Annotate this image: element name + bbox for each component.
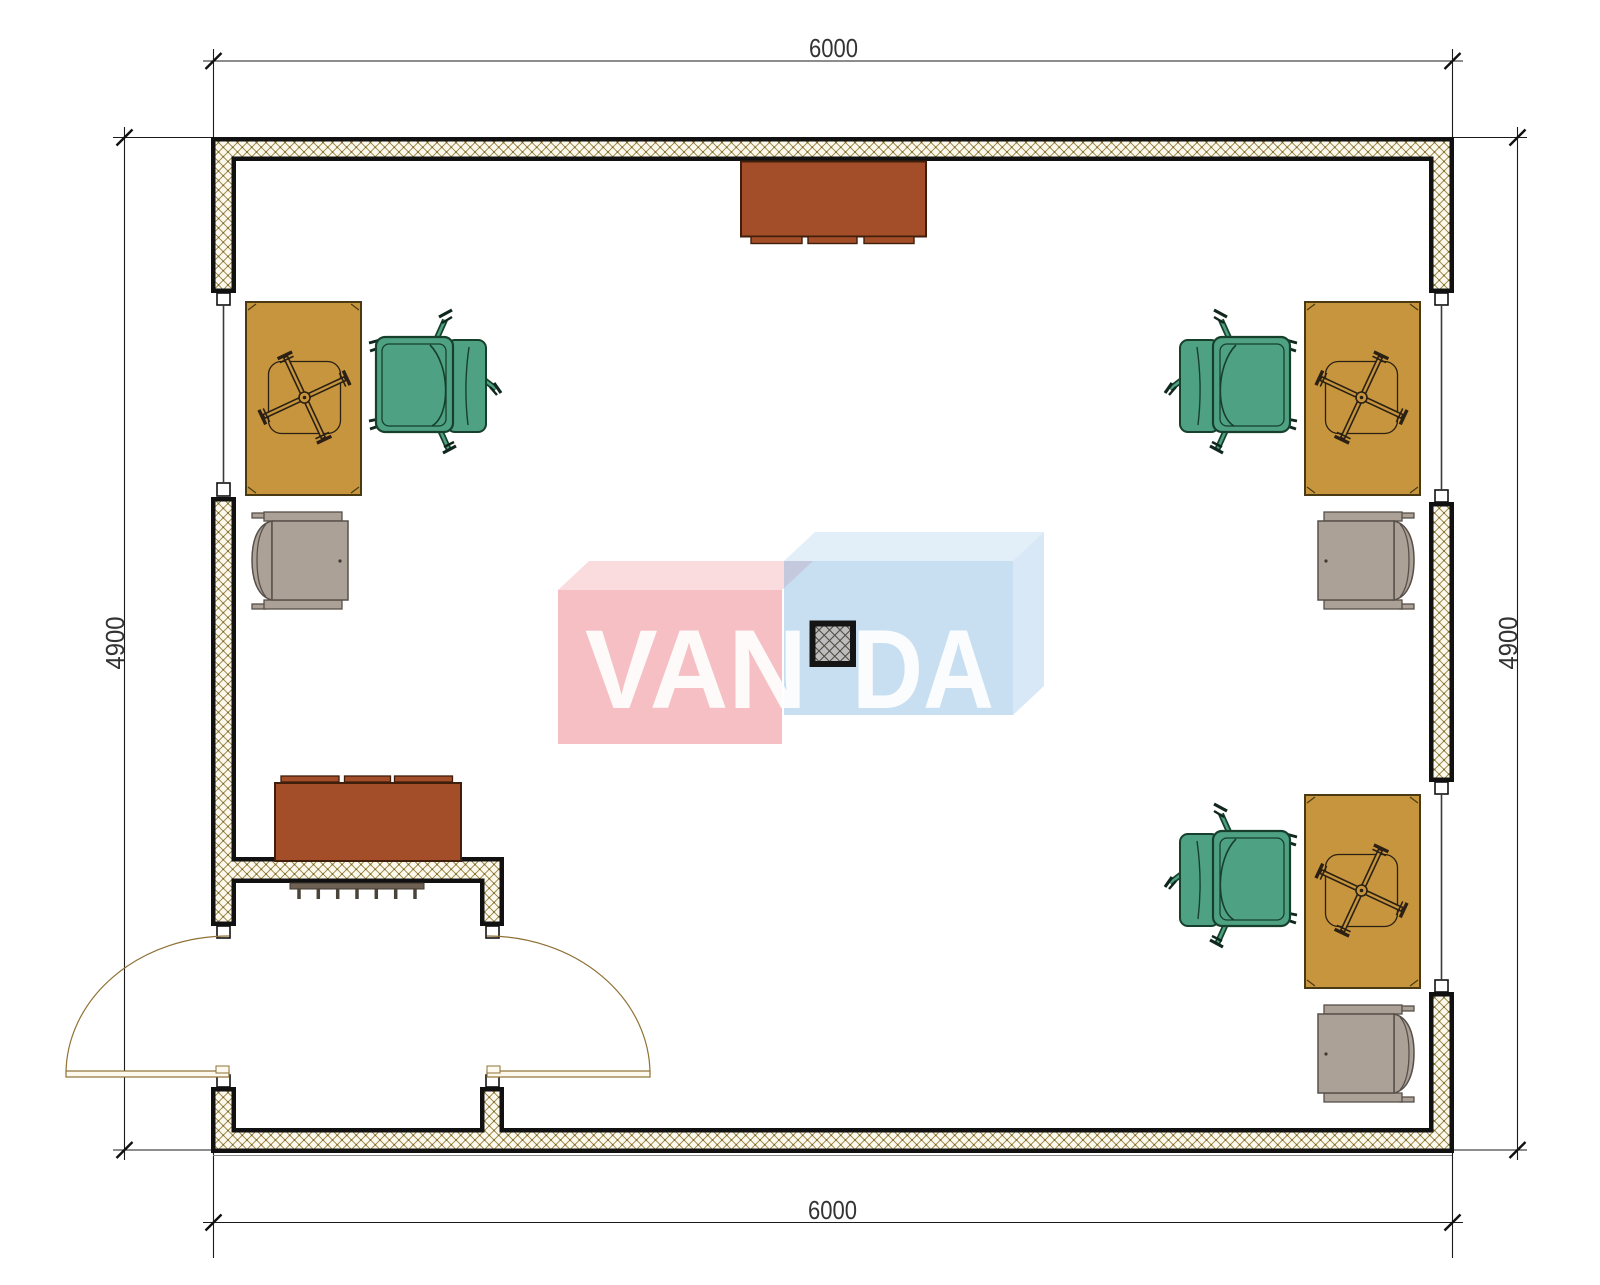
svg-text:DA: DA [852, 607, 994, 732]
svg-text:4900: 4900 [1495, 617, 1523, 670]
svg-text:VAN: VAN [585, 607, 807, 732]
svg-text:4900: 4900 [102, 617, 130, 670]
svg-text:6000: 6000 [808, 1197, 857, 1225]
svg-text:6000: 6000 [809, 35, 858, 63]
